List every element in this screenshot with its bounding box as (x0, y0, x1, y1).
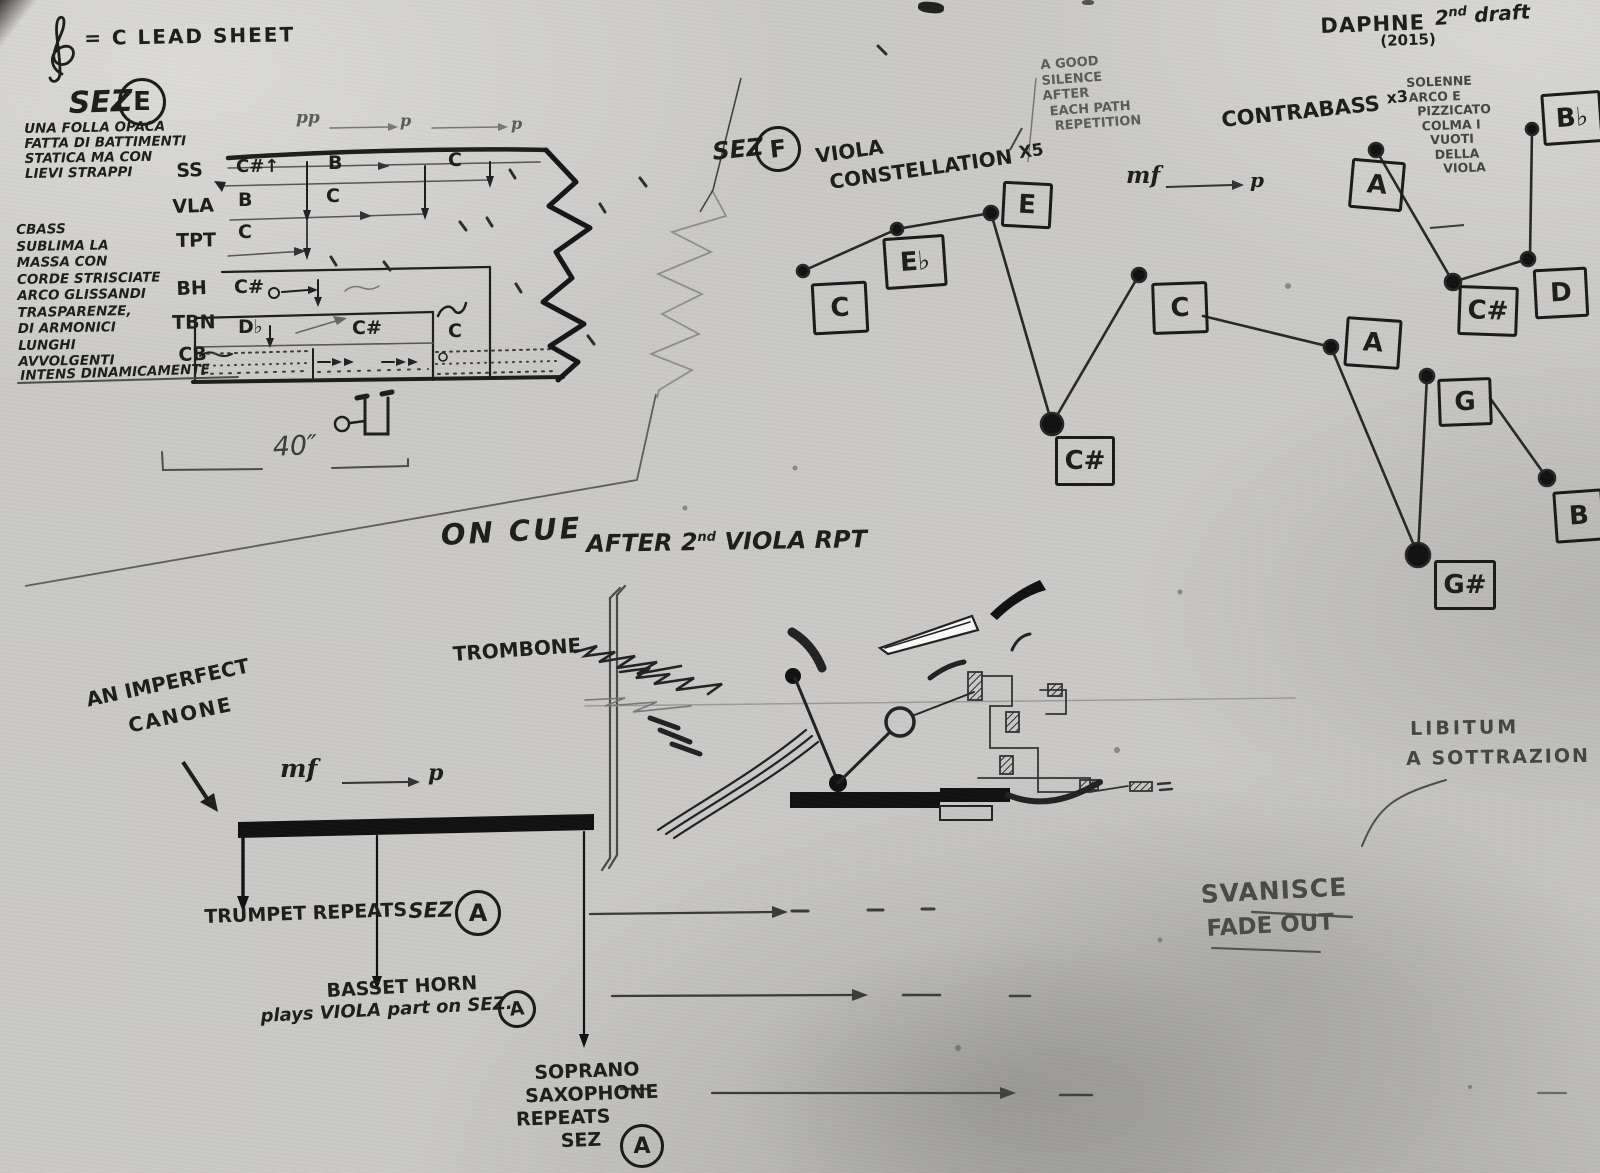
note-box: A (1343, 316, 1402, 370)
dyn-p2: p (511, 114, 522, 133)
note-box: C# (1055, 436, 1115, 486)
row-label-ss: SS (176, 159, 203, 182)
canon-dyn-mf: mf (280, 754, 317, 783)
score-sketch-photo: = C LEAD SHEET DAPHNE 2nd draft (2015) S… (0, 0, 1600, 1173)
dyn-pp: pp (296, 108, 320, 128)
cb-dyn-mf: mf (1126, 162, 1160, 189)
note-vla-1: B (238, 189, 252, 211)
circled-letter: A (633, 1134, 650, 1159)
silence-note: A GOOD SILENCE AFTER EACH PATH REPETITIO… (1040, 51, 1142, 135)
trumpet-sez-letter: A (455, 890, 501, 936)
contrabass-mult: x3 (1386, 86, 1409, 107)
solenne-dash (1430, 225, 1464, 228)
note-box: C (811, 281, 870, 336)
note-tbn-2: C# (352, 317, 382, 339)
note-vla-2: C (326, 185, 340, 207)
fade-arrows (590, 906, 1566, 1099)
note-tpt-1: C (238, 221, 252, 243)
draft-ordinal: nd (1448, 4, 1468, 20)
note-box: G# (1434, 560, 1496, 610)
draft-word: draft (1473, 0, 1530, 27)
note-ss-2: B (328, 152, 342, 174)
note-box: C# (1457, 285, 1519, 337)
lead-sheet-note: = C LEAD SHEET (84, 22, 295, 50)
row-label-vla: VLA (172, 195, 214, 218)
circled-letter: E (133, 87, 151, 117)
note-tbn-1: D♭ (238, 316, 263, 338)
note-ss-3: C (448, 149, 462, 171)
title-year: (2015) (1380, 30, 1436, 50)
dyn-p1: p (400, 111, 411, 130)
row-label-tpt: TPT (176, 229, 216, 252)
canon-dyn-arrow (342, 777, 420, 787)
libitum-line-1: LIBITUM (1410, 716, 1519, 740)
sez-e-note-2: CBASS SUBLIMA LA MASSA CON CORDE STRISCI… (16, 219, 162, 370)
cue-after: AFTER 2nd VIOLA RPT (586, 525, 867, 558)
note-ss-1: C#↑ (236, 156, 279, 177)
sez-e-note-1: UNA FOLLA OPACA FATTA DI BATTIMENTI STAT… (24, 119, 187, 182)
note-box: E♭ (882, 234, 947, 290)
note-bh-1: C# (234, 276, 264, 298)
row-label-tbn: TBN (172, 311, 216, 334)
viola-mult: X5 (1017, 140, 1044, 163)
tear-line (651, 190, 726, 398)
duration-label: 40″ (272, 430, 318, 463)
photo-artifact (1082, 0, 1094, 5)
note-box: C (1151, 281, 1209, 335)
stray-marks (331, 46, 886, 344)
note-box: B (1552, 488, 1600, 543)
row-label-bh: BH (176, 277, 207, 300)
note-box: D (1533, 267, 1590, 320)
torn-edge (543, 150, 590, 380)
treble-clef-icon (50, 17, 73, 81)
note-box: E (1001, 181, 1053, 230)
note-box: G (1437, 377, 1493, 427)
note-box: B♭ (1540, 90, 1600, 146)
note-box: A (1348, 158, 1406, 213)
solenne-note: SOLENNE ARCO E PIZZICATO COLMA I VUOTI D… (1406, 73, 1493, 177)
note-tbn-3: C (448, 320, 462, 342)
boundary-line (25, 394, 656, 586)
circled-letter: A (509, 997, 526, 1020)
canon-dyn-p: p (428, 760, 443, 786)
row-label-cb: CB (178, 343, 207, 366)
gesture-graphic (575, 580, 1295, 870)
cb-dyn-p: p (1250, 168, 1264, 192)
libitum-line-2: A SOTTRAZION (1406, 745, 1590, 770)
trumpet-sez: SEZ (408, 897, 454, 923)
circled-letter: A (469, 899, 488, 927)
circled-letter: F (768, 134, 787, 164)
contrabass-dyn-arrow (1166, 180, 1244, 190)
canone-arrow (183, 762, 218, 812)
sax-sez-letter: A (620, 1124, 664, 1168)
duration-note-glyph (335, 392, 392, 434)
